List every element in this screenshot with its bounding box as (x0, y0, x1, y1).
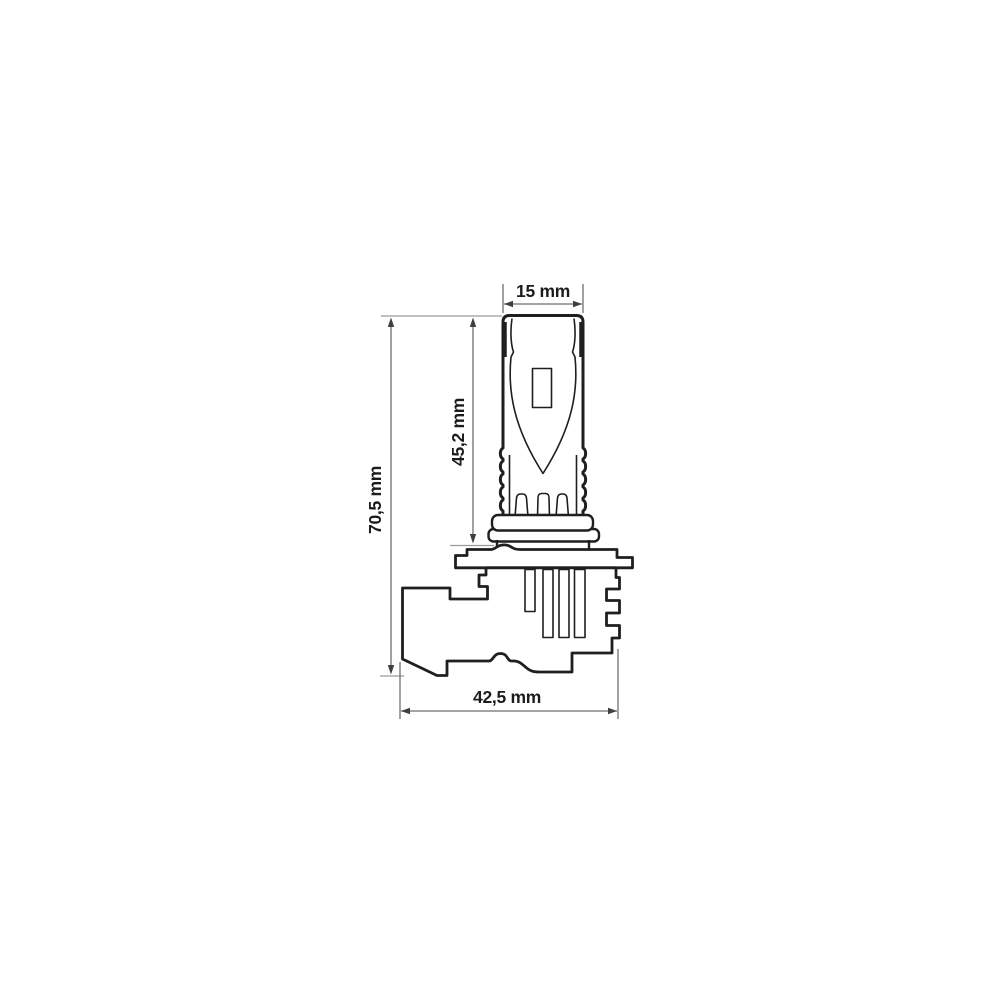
bulb-capsule-and-neck (500, 316, 585, 517)
bulb-dimension-diagram: 15 mm 45,2 mm 70,5 mm 42,5 mm (0, 0, 1000, 1000)
led-chip (533, 369, 552, 408)
heat-sink-pin (543, 570, 553, 638)
dimension-label-base-width: 42,5 mm (473, 687, 541, 707)
arrow-upper-height-down (470, 534, 476, 544)
heat-sink-pin (575, 570, 586, 638)
arrow-base-width-left (401, 708, 410, 714)
dimension-label-total-height: 70,5 mm (365, 466, 385, 534)
base-finger-center (538, 494, 550, 518)
heat-sink-pin (525, 570, 535, 612)
arrow-total-height-up (388, 318, 394, 328)
collar-ring-upper (492, 515, 593, 531)
arrow-top-width-left (504, 301, 513, 307)
dimension-label-top-width: 15 mm (516, 281, 570, 301)
base-finger-right (556, 494, 569, 517)
base-finger-left (515, 494, 528, 517)
arrow-base-width-right (608, 708, 617, 714)
dimension-label-upper-height: 45,2 mm (448, 398, 468, 466)
flange-plate (456, 545, 633, 568)
arrow-upper-height-up (470, 318, 476, 328)
bulb-dimension-diagram-page: 15 mm 45,2 mm 70,5 mm 42,5 mm (0, 0, 1000, 1000)
arrow-total-height-down (388, 665, 394, 675)
lower-body-and-connector (403, 568, 620, 676)
bulb-outline (403, 316, 633, 676)
arrow-top-width-right (573, 301, 582, 307)
heat-sink-pin (559, 570, 569, 638)
